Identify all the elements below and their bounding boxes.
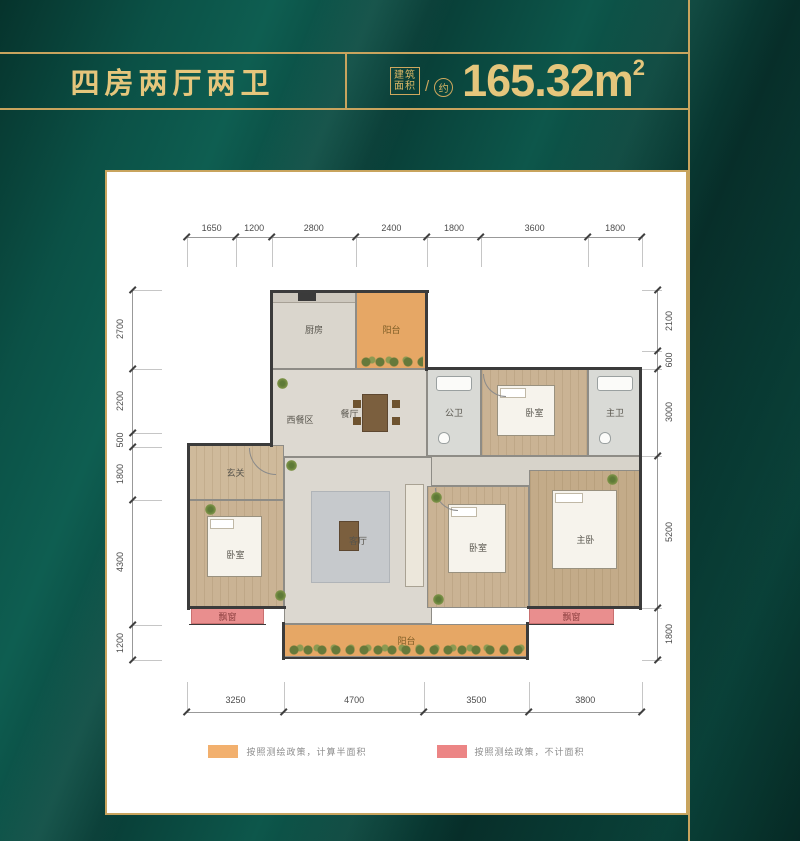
area-superscript: 2: [633, 57, 645, 79]
plant-icon: [275, 590, 286, 601]
witness-line: [642, 351, 662, 352]
room-label-kitchen: 厨房: [305, 323, 323, 336]
wall-segment: [270, 367, 273, 447]
unit-type-cell: 四房两厅两卫: [0, 54, 347, 108]
dim-value-left: 1200: [114, 619, 126, 667]
unit-type-title: 四房两厅两卫: [70, 60, 274, 102]
dim-value-top: 1200: [230, 222, 278, 234]
wall-segment: [425, 290, 428, 371]
plant-icon: [286, 460, 297, 471]
room-public-bath: 公卫: [427, 369, 481, 456]
legend-item-no-area: 按照测绘政策，不计面积: [437, 745, 585, 758]
header-band: 四房两厅两卫 建筑 面积 / 约 165.32 m 2: [0, 52, 688, 110]
wall-segment: [187, 443, 272, 446]
dim-value-bottom: 3500: [452, 694, 500, 706]
furniture-bed: [448, 504, 506, 574]
legend-swatch-orange: [208, 745, 238, 758]
room-label-master-bath: 主卫: [606, 406, 624, 419]
room-living: 客厅: [284, 457, 432, 624]
furniture-sofa: [405, 484, 424, 586]
furniture-chair: [392, 400, 400, 408]
room-master-bath: 主卫: [588, 369, 642, 456]
area-unit: m: [594, 57, 633, 105]
witness-line: [427, 237, 428, 267]
furniture-tub: [436, 376, 472, 391]
room-label-balcony-bottom: 阳台: [397, 634, 415, 647]
dim-value-top: 1650: [188, 222, 236, 234]
area-number: 165.32: [462, 57, 594, 105]
approx-circle: 约: [434, 78, 453, 97]
furniture-stove: [298, 293, 316, 301]
wall-segment: [187, 443, 190, 610]
wall-segment: [187, 606, 286, 609]
legend-item-half-area: 按照测绘政策，计算半面积: [208, 745, 366, 758]
dim-value-left: 2700: [114, 305, 126, 353]
dimension-tick: [638, 708, 645, 715]
furniture-bed: [552, 490, 616, 569]
dim-value-bottom: 4700: [330, 694, 378, 706]
dim-value-top: 1800: [591, 222, 639, 234]
plants-decoration: [360, 354, 423, 367]
furniture-table: [362, 394, 388, 432]
witness-line: [529, 682, 530, 712]
witness-line: [132, 369, 162, 370]
witness-line: [481, 237, 482, 267]
dim-value-bottom: 3800: [561, 694, 609, 706]
room-west-dining-area: 西餐区: [275, 407, 325, 431]
room-label-bay-window-left: 飘窗: [218, 610, 236, 623]
room-label-bedroom-top: 卧室: [525, 406, 543, 419]
witness-line: [642, 456, 662, 457]
wall-segment: [282, 657, 529, 659]
witness-line: [642, 290, 662, 291]
room-bedroom-left: 卧室: [187, 500, 284, 608]
witness-line: [642, 369, 662, 370]
dimension-line: [187, 712, 642, 713]
wall-segment: [526, 622, 529, 660]
room-balcony-top: 阳台: [356, 290, 427, 369]
room-kitchen: 厨房: [272, 290, 356, 369]
plant-icon: [277, 378, 288, 389]
furniture-tub: [597, 376, 633, 391]
witness-line: [132, 433, 162, 434]
dimension-line: [187, 237, 642, 238]
dim-value-top: 2400: [367, 222, 415, 234]
furniture-wc: [599, 432, 611, 444]
room-label-master-bedroom: 主卧: [576, 533, 594, 546]
slash-divider: /: [425, 78, 429, 95]
wall-segment: [425, 367, 642, 370]
witness-line: [132, 447, 162, 448]
dim-value-left: 4300: [114, 538, 126, 586]
wall-segment: [639, 367, 642, 610]
witness-line: [132, 290, 162, 291]
furniture-wc: [438, 432, 450, 444]
witness-line: [356, 237, 357, 267]
dim-value-right: 5200: [663, 508, 675, 556]
room-master-bedroom: 主卧: [529, 470, 642, 608]
dimension-chain-left: 27002200500180043001200: [117, 290, 187, 660]
dim-value-top: 1800: [430, 222, 478, 234]
plant-icon: [205, 504, 216, 515]
room-label-foyer: 玄关: [226, 466, 244, 479]
wall-segment: [270, 290, 273, 371]
dim-value-right: 600: [663, 336, 675, 384]
witness-line: [187, 237, 188, 267]
witness-line: [272, 237, 273, 267]
witness-line: [642, 237, 643, 267]
dim-value-top: 3600: [511, 222, 559, 234]
wall-segment: [529, 624, 614, 625]
dim-value-right: 1800: [663, 610, 675, 658]
room-label-public-bath: 公卫: [445, 406, 463, 419]
room-bay-window-left: 飘窗: [191, 608, 264, 624]
wall-segment: [527, 606, 642, 609]
witness-line: [236, 237, 237, 267]
room-bay-window-right: 飘窗: [529, 608, 614, 624]
plant-icon: [431, 492, 442, 503]
room-label-bedroom-left: 卧室: [226, 548, 244, 561]
dimension-line: [132, 290, 133, 660]
witness-line: [588, 237, 589, 267]
witness-line: [132, 660, 162, 661]
witness-line: [642, 608, 662, 609]
area-cell: 建筑 面积 / 约 165.32 m 2: [347, 54, 688, 108]
plant-icon: [607, 474, 618, 485]
dim-value-bottom: 3250: [211, 694, 259, 706]
wall-segment: [282, 622, 285, 660]
legend-swatch-pink: [437, 745, 467, 758]
dimension-chain-top: 1650120028002400180036001800: [187, 220, 642, 290]
dim-value-top: 2800: [290, 222, 338, 234]
witness-line: [132, 500, 162, 501]
witness-line: [132, 625, 162, 626]
legend: 按照测绘政策，计算半面积 按照测绘政策，不计面积: [107, 745, 686, 758]
area-badge-line1: 建筑: [394, 70, 416, 81]
room-label-bay-window-right: 飘窗: [562, 610, 580, 623]
area-value: 165.32 m 2: [462, 57, 645, 105]
dim-value-left: 1800: [114, 450, 126, 498]
wall-segment: [270, 290, 429, 293]
wall-segment: [189, 624, 266, 625]
room-label-dining: 餐厅: [340, 407, 358, 420]
floor-plan: 厨房阳台餐厅公卫卧室主卫玄关卧室客厅卧室主卧飘窗阳台飘窗西餐区165012002…: [187, 290, 642, 660]
legend-text-no-area: 按照测绘政策，不计面积: [475, 745, 585, 758]
witness-line: [642, 660, 662, 661]
room-balcony-bottom: 阳台: [284, 624, 529, 657]
dimension-chain-bottom: 3250470035003800: [187, 660, 642, 730]
floor-plan-panel: 厨房阳台餐厅公卫卧室主卫玄关卧室客厅卧室主卧飘窗阳台飘窗西餐区165012002…: [105, 170, 688, 815]
room-label-west-dining-area: 西餐区: [286, 413, 313, 426]
legend-text-half-area: 按照测绘政策，计算半面积: [246, 745, 366, 758]
area-badge-line2: 面积: [394, 81, 416, 92]
room-label-bedroom-mid: 卧室: [469, 541, 487, 554]
furniture-chair: [392, 417, 400, 425]
area-badge: 建筑 面积: [390, 67, 420, 95]
dim-value-right: 3000: [663, 388, 675, 436]
room-label-balcony-top: 阳台: [382, 323, 400, 336]
dimension-chain-right: 2100600300052001800: [642, 290, 712, 660]
plant-icon: [433, 594, 444, 605]
room-label-living: 客厅: [349, 534, 367, 547]
